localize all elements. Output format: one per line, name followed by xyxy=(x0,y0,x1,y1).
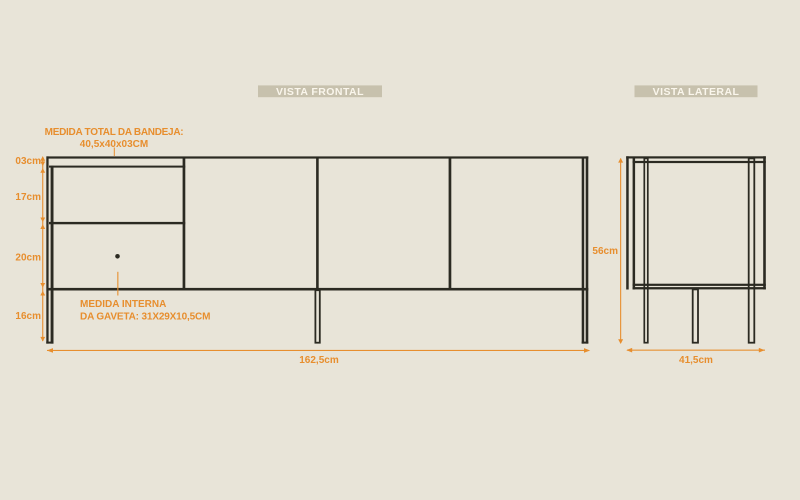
svg-text:56cm: 56cm xyxy=(592,246,618,257)
svg-text:MEDIDA TOTAL DA BANDEJA:: MEDIDA TOTAL DA BANDEJA: xyxy=(45,127,184,138)
svg-text:VISTA LATERAL: VISTA LATERAL xyxy=(653,86,740,98)
svg-text:16cm: 16cm xyxy=(15,311,41,322)
svg-text:41,5cm: 41,5cm xyxy=(679,355,713,366)
svg-text:DA GAVETA: 31X29X10,5CM: DA GAVETA: 31X29X10,5CM xyxy=(80,312,210,323)
svg-text:VISTA FRONTAL: VISTA FRONTAL xyxy=(276,86,364,98)
svg-text:162,5cm: 162,5cm xyxy=(299,355,339,366)
svg-text:20cm: 20cm xyxy=(15,252,41,263)
svg-text:MEDIDA INTERNA: MEDIDA INTERNA xyxy=(80,299,166,310)
svg-text:17cm: 17cm xyxy=(15,192,41,203)
svg-text:03cm: 03cm xyxy=(15,156,41,167)
